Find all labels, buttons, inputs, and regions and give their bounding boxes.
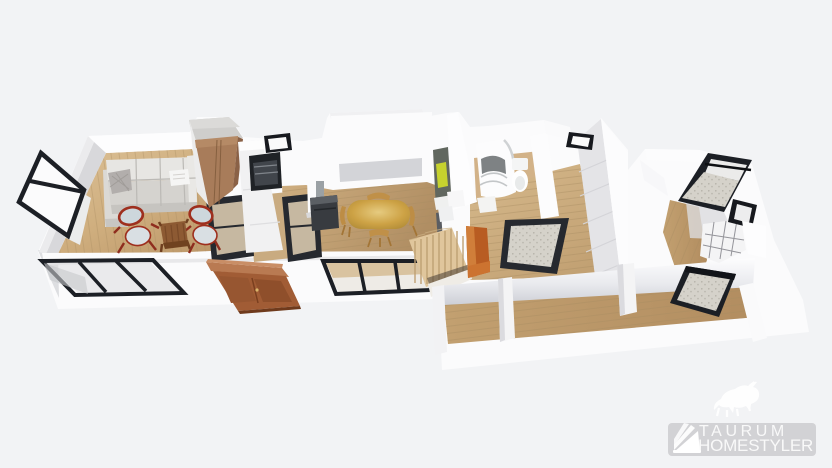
svg-text:HOMESTYLER: HOMESTYLER bbox=[698, 436, 813, 455]
